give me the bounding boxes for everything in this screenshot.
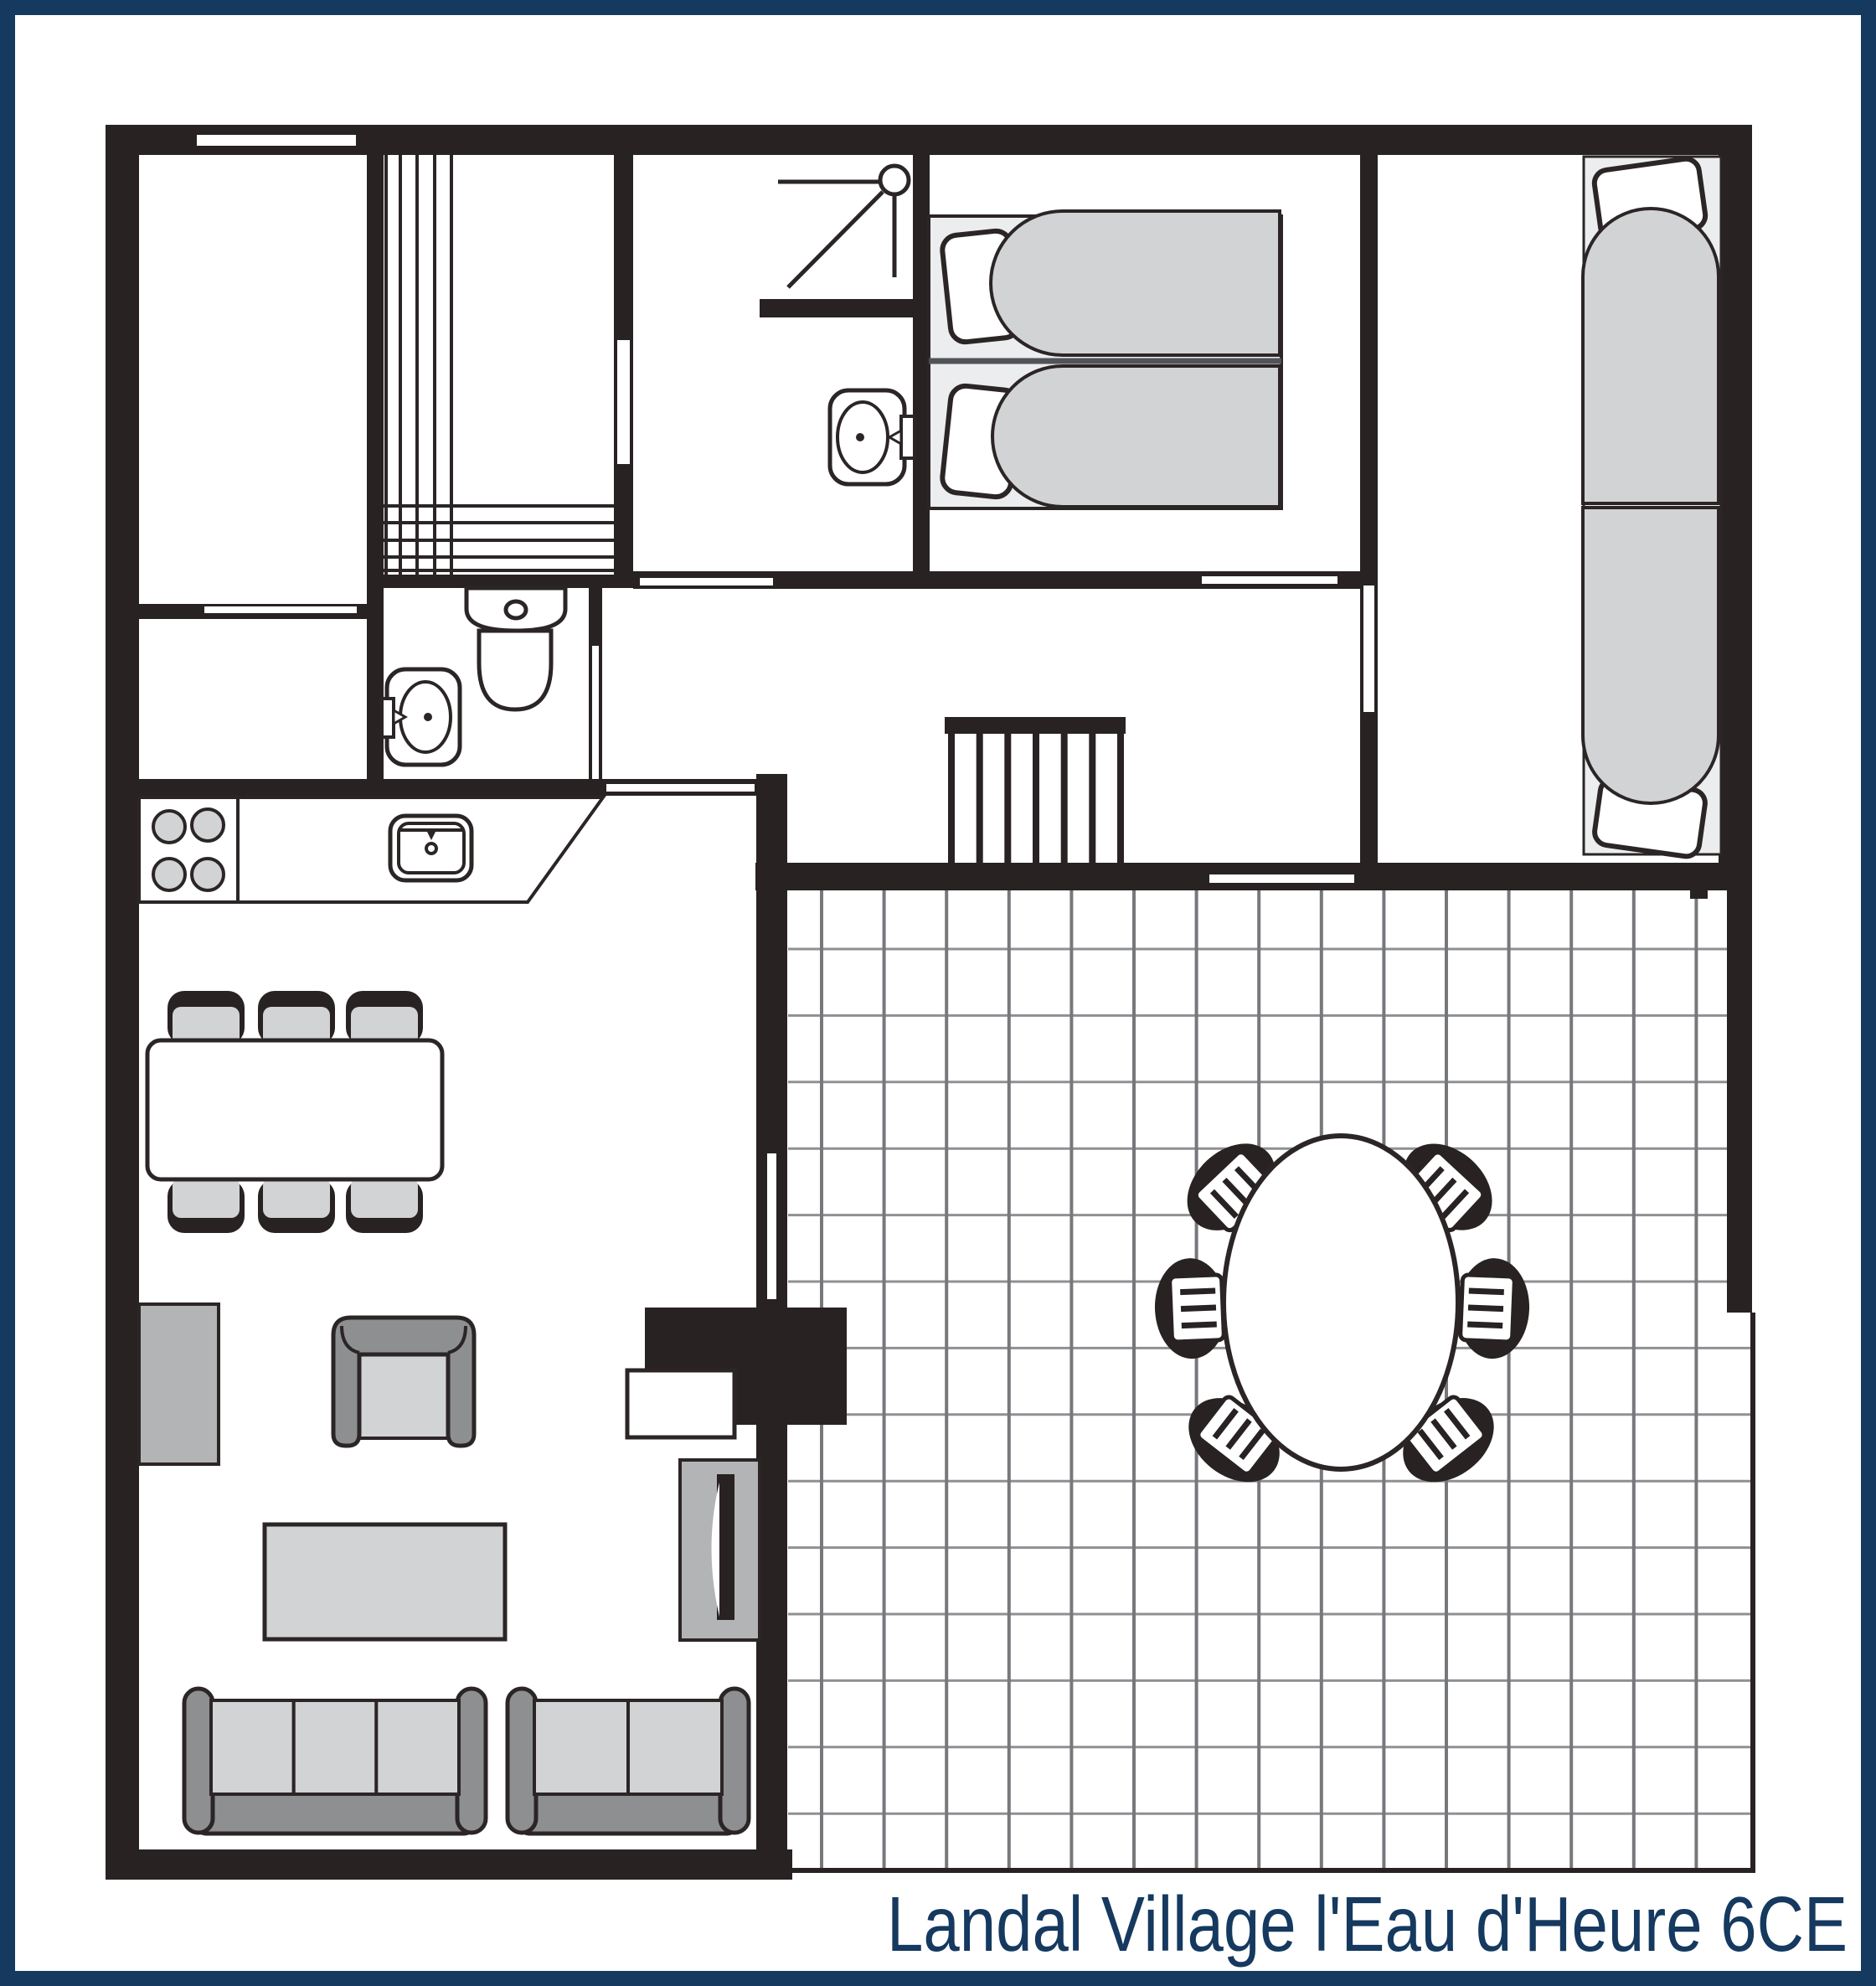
svg-text:Landal Village l'Eau d'Heure 6: Landal Village l'Eau d'Heure 6CE: [887, 1880, 1848, 1968]
